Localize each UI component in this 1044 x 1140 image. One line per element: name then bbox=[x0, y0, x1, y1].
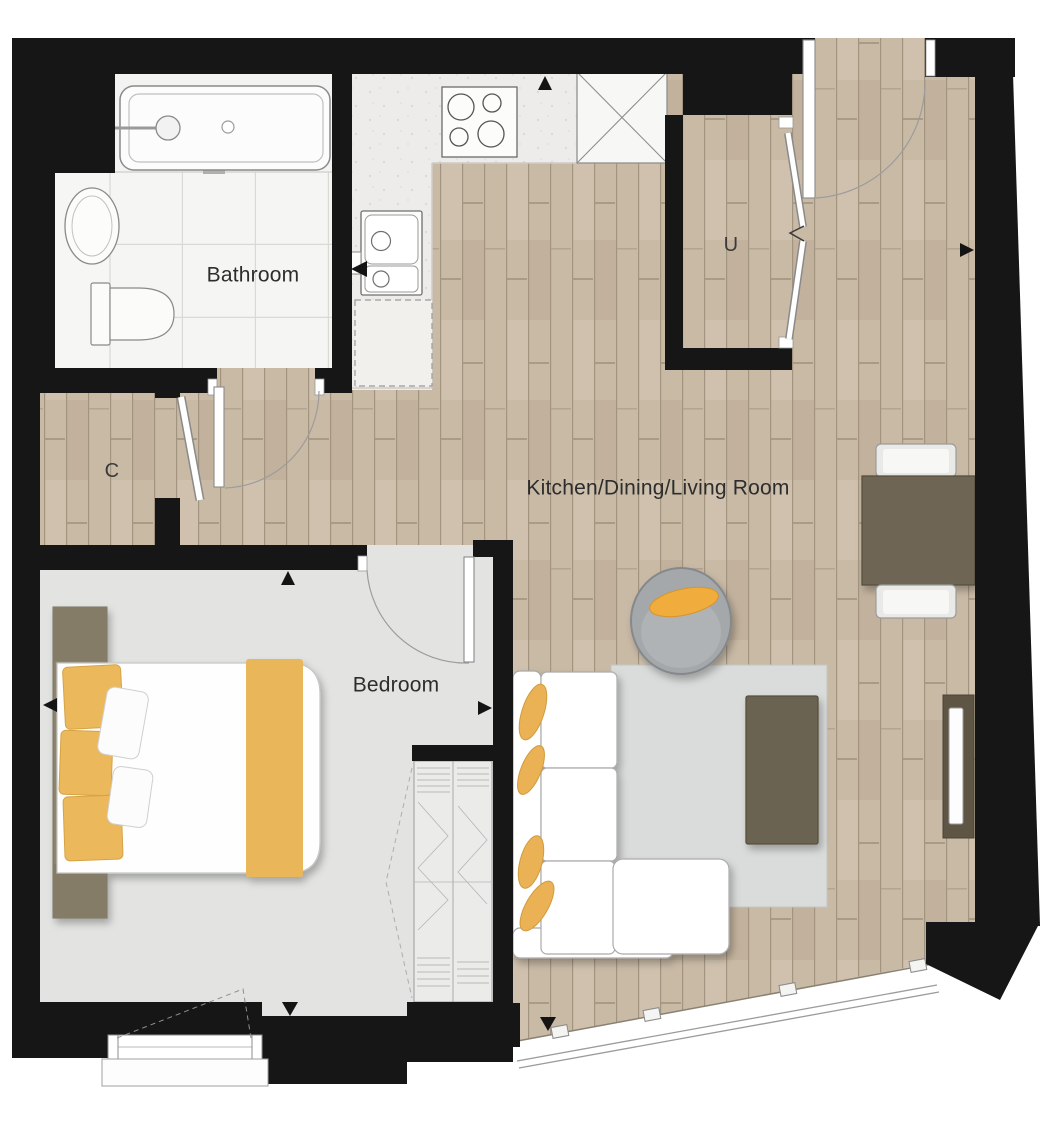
dining-chair-icon bbox=[876, 585, 956, 618]
kitchen-sink-icon bbox=[351, 211, 422, 295]
hob-icon bbox=[442, 87, 517, 157]
dining-table-icon bbox=[862, 476, 975, 585]
room-label-closet-c: C bbox=[105, 460, 120, 482]
tall-unit-x-icon bbox=[577, 72, 667, 163]
room-label-utility-u: U bbox=[724, 234, 739, 256]
toilet-icon bbox=[91, 283, 174, 345]
floor-plan-drawing bbox=[0, 0, 1044, 1140]
washbasin-icon bbox=[65, 188, 119, 264]
floor-plan: Bathroom Kitchen/Dining/Living Room Bedr… bbox=[0, 0, 1044, 1140]
appliance-space-icon bbox=[355, 300, 432, 386]
bedside-table-icon bbox=[53, 607, 107, 661]
room-label-kitchen-dining-living: Kitchen/Dining/Living Room bbox=[526, 476, 789, 499]
room-label-bedroom: Bedroom bbox=[353, 673, 440, 696]
coffee-table-icon bbox=[746, 696, 818, 844]
armchair-icon bbox=[631, 568, 731, 674]
room-label-bathroom: Bathroom bbox=[207, 263, 300, 286]
dining-chair-icon bbox=[876, 444, 956, 477]
tv-unit-icon bbox=[943, 695, 974, 838]
bathtub-icon bbox=[112, 86, 330, 170]
